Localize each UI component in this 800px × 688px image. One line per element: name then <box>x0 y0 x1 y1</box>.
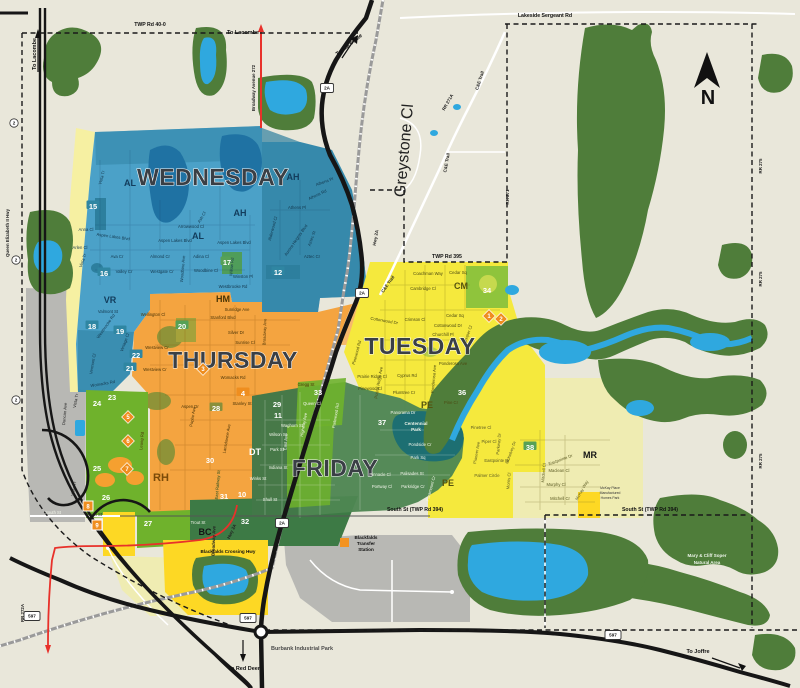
neighborhood-code: AH <box>234 208 247 218</box>
park <box>723 431 747 459</box>
direction-label: To Lacombe <box>32 38 38 70</box>
transfer-station-icon <box>340 538 349 547</box>
street-label: Homes Park <box>601 496 620 500</box>
zone-number: 12 <box>274 268 282 277</box>
highway-shield-number: 2 <box>13 121 16 126</box>
zone-number: 25 <box>93 464 101 473</box>
street-label: McKay Place <box>600 486 620 490</box>
street-label: Queen Cl <box>303 401 321 406</box>
street-label: Palmer Circle <box>474 473 500 478</box>
neighborhood-code: HM <box>216 294 230 304</box>
street-label: Cambridge Cl <box>410 286 436 291</box>
zone-number: 18 <box>88 322 96 331</box>
street-label: Winks St <box>250 476 267 481</box>
street-label: Westbrooke Rd <box>219 284 248 289</box>
street-label: Pine Cr <box>444 400 459 405</box>
street-label: Crimson Cl <box>405 317 426 322</box>
street-label: Station <box>358 547 374 552</box>
street-label: Palisades St <box>400 471 424 476</box>
lake <box>265 80 307 114</box>
roundabout <box>255 626 267 638</box>
street-label: Ponderosa Ave <box>439 361 468 366</box>
street-label: Shull St <box>263 497 278 502</box>
zone-number: 29 <box>273 400 281 409</box>
street-label: Coachman Way <box>413 271 444 276</box>
day-zone-label: FRIDAY <box>292 455 379 481</box>
street-label: Cyprus Rd <box>397 373 417 378</box>
street-label: Westgate Cr <box>150 269 174 274</box>
direction-label: To Lacombe <box>227 30 259 36</box>
direction-label: To Joffre <box>686 649 709 655</box>
street-label: Park Sq <box>411 455 427 460</box>
street-label: Cedar Sq <box>446 313 464 318</box>
road-label: Broadway Avenue 272 <box>251 64 256 111</box>
lake <box>539 340 591 364</box>
zone-number: 20 <box>178 322 186 331</box>
map-canvas: N WEDNESDAYTHURSDAYTUESDAYFRIDAY AHAHALA… <box>0 0 800 688</box>
street-label: Maclean Cl <box>549 468 570 473</box>
street-label: Aspen Lakes Blvd <box>158 238 192 243</box>
street-label: Pondside Cr <box>408 442 432 447</box>
neighborhood-code: AL <box>192 231 204 241</box>
direction-label: To Red Deer <box>228 666 261 672</box>
street-label: Blackfalds <box>355 535 378 540</box>
street-label: Blackfalds Crossing Hwy <box>201 549 256 554</box>
pond <box>75 420 85 436</box>
zone-number: 38 <box>526 443 534 452</box>
street-label: Parkridge Cr <box>401 484 425 489</box>
street-label: Broadway Ave <box>262 318 268 346</box>
street-label: Aspen Dr <box>181 404 199 409</box>
street-label: Sunridge Ave <box>225 307 251 312</box>
street-label: Murphy Cl <box>546 482 565 487</box>
compass-n-label: N <box>701 87 715 109</box>
highway-shield-number: 2A <box>359 291 366 296</box>
street-label: Aspen Lakes Blvd <box>217 240 251 245</box>
zone-number: 30 <box>206 456 214 465</box>
road-label: South St (TWP Rd 394) <box>387 507 443 513</box>
neighborhood-code: RH <box>153 472 169 484</box>
west-green-zone <box>86 390 148 518</box>
street-label: Womacks Rd <box>221 375 246 380</box>
street-label: Trout St <box>191 520 207 525</box>
street-label: Adina Cl <box>193 254 209 259</box>
street-label: Almond Cr <box>150 254 170 259</box>
street-label: Arlen Cl <box>73 245 88 250</box>
street-label: South St <box>86 512 103 517</box>
street-label: Pinetree Cl <box>471 425 492 430</box>
neighborhood-code: DT <box>249 447 261 457</box>
park <box>758 54 793 93</box>
street-label: Sunrise Cl <box>235 340 254 345</box>
waste-collection-map: N WEDNESDAYTHURSDAYTUESDAYFRIDAY AHAHALA… <box>0 0 800 688</box>
highway-shield-number: 2A <box>324 86 331 91</box>
zone-number: 19 <box>116 327 124 336</box>
zone-number: 21 <box>126 364 134 373</box>
zone-number: 36 <box>458 388 466 397</box>
neighborhood-code: MR <box>583 450 597 460</box>
street-label: Cottonwood Dr <box>434 323 463 328</box>
road-label: Lakeside Sergeant Rd <box>518 13 572 19</box>
road-label: RR 275 <box>758 158 763 173</box>
zone-number: 27 <box>144 519 152 528</box>
street-label: Cedar Sq <box>449 270 467 275</box>
lake <box>690 333 730 351</box>
zone-number: 33 <box>314 388 322 397</box>
street-label: Mary & Cliff Soper <box>687 553 726 558</box>
street-label: Transfer <box>357 541 375 546</box>
zone-number: 10 <box>238 490 246 499</box>
highway-shield-number: 2A <box>279 521 286 526</box>
street-label: Centennial <box>404 421 427 426</box>
zone-number: 31 <box>220 492 228 501</box>
street-label: Anna Cl <box>79 227 94 232</box>
street-label: Valmont St <box>98 309 119 314</box>
zone-number: 28 <box>212 404 220 413</box>
lake <box>468 542 588 601</box>
street-label: Churchill Pl <box>432 332 453 337</box>
zone-number: 34 <box>483 286 492 295</box>
street-label: Stanley St <box>232 401 252 406</box>
road-label: TWP Rd 395 <box>432 254 462 260</box>
street-label: South St <box>45 510 62 515</box>
zone-number: 23 <box>108 393 116 402</box>
road-label: TWP Rd 40-0 <box>134 22 166 28</box>
highway-shield-number: 597 <box>609 633 617 638</box>
neighborhood-code: PE <box>421 400 433 410</box>
road-label: RR 272A <box>20 603 25 622</box>
zone-number: 15 <box>89 202 97 211</box>
street-label: Pinnacle Cl <box>369 472 390 477</box>
highway-shield-number: 597 <box>28 614 36 619</box>
zone-number: 16 <box>100 269 108 278</box>
neighborhood-code: CM <box>454 281 468 291</box>
street-label: Ava Cr <box>111 254 124 259</box>
road-label: Broadway Ave <box>210 525 216 556</box>
zone-number: 11 <box>274 411 282 420</box>
zone-number: 22 <box>132 351 140 360</box>
street-label: Mitchell Cr <box>550 496 570 501</box>
street-label: Silver Dr <box>228 330 245 335</box>
pond <box>430 130 438 136</box>
day-zone-label: THURSDAY <box>168 347 298 373</box>
road-end-dot <box>450 590 454 594</box>
street-label: Aztec Cr <box>304 254 321 259</box>
zone-number: 37 <box>378 418 386 427</box>
street-label: Indiana St <box>269 465 289 470</box>
orange-blob <box>95 473 115 487</box>
pond <box>505 285 519 295</box>
zone-number: 24 <box>93 399 102 408</box>
road-label: RR 271 <box>505 189 510 204</box>
neighborhood-code: BC <box>199 527 212 537</box>
street-label: Portway Cl <box>372 484 392 489</box>
street-label: Wellington Cl <box>141 312 166 317</box>
pond <box>453 104 461 110</box>
zone-number: 32 <box>241 517 249 526</box>
street-label: Stanford Blvd <box>210 315 236 320</box>
street-label: Natural Area <box>694 560 721 565</box>
street-label: Prairie Ridge Cl <box>357 374 386 379</box>
street-label: Manufactured <box>600 491 621 495</box>
highway-shield-number: 597 <box>244 616 252 621</box>
street-label: Winston Pl <box>233 274 253 279</box>
street-label: Gregg St <box>298 382 316 387</box>
pond <box>626 400 654 416</box>
street-label: Plumtree Cr <box>393 390 416 395</box>
street-label: Athens Pl <box>288 205 306 210</box>
road-label: RR 275 <box>758 271 763 286</box>
day-zone-label: TUESDAY <box>364 333 475 359</box>
neighborhood-code: VR <box>104 295 117 305</box>
highway-shield-number: 2 <box>15 398 18 403</box>
street-label: Woodbine Cl <box>194 268 218 273</box>
road-label: South St (TWP Rd 394) <box>622 507 678 513</box>
road-label: Queen Elizabeth II Hwy <box>5 208 10 257</box>
street-label: Arrowwood Cl <box>178 224 204 229</box>
street-label: Piper Cl <box>482 439 497 444</box>
zone-number: 26 <box>102 493 110 502</box>
road-label: RR 275 <box>758 453 763 468</box>
neighborhood-code: AL <box>124 178 136 188</box>
highway-shield-number: 2 <box>15 258 18 263</box>
street-label: Pinewood Cl <box>358 386 382 391</box>
street-label: Valley Cr <box>116 269 133 274</box>
street-label: Westview Cr <box>143 367 167 372</box>
street-label: Park <box>411 427 421 432</box>
neighborhood-code: PE <box>442 478 454 488</box>
street-label: Westview Cr <box>145 345 169 350</box>
neighborhood-code: AH <box>287 172 300 182</box>
day-zone-label: WEDNESDAY <box>137 164 289 190</box>
street-label: Burbank Industrial Park <box>271 646 334 652</box>
street-label: Panorama Dr <box>391 410 417 415</box>
